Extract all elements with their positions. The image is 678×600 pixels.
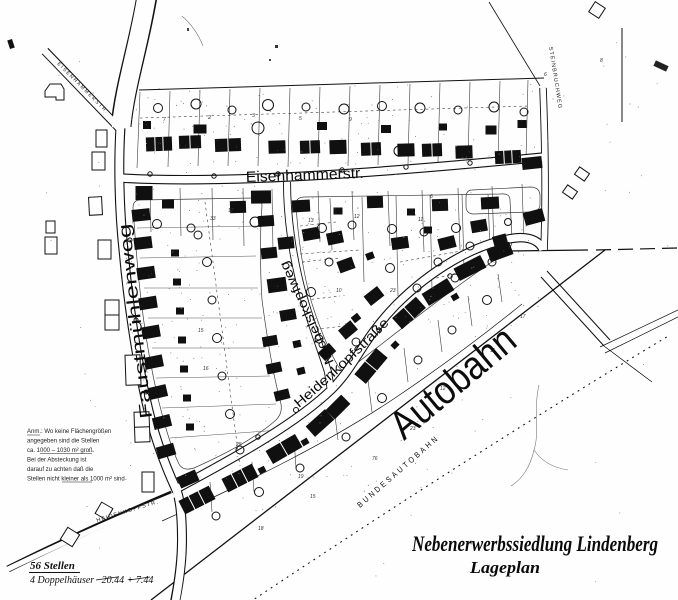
svg-text:76: 76 bbox=[372, 456, 378, 462]
svg-text:Lageplan: Lageplan bbox=[469, 558, 540, 577]
svg-text:7: 7 bbox=[163, 117, 166, 123]
svg-text:56 Stellen: 56 Stellen bbox=[30, 560, 75, 572]
svg-text:33: 33 bbox=[210, 216, 216, 222]
svg-text:15: 15 bbox=[310, 494, 316, 500]
svg-text:Nebenerwerbssiedlung Lindenber: Nebenerwerbssiedlung Lindenberg bbox=[411, 531, 658, 556]
svg-text:6: 6 bbox=[430, 194, 433, 200]
svg-text:13: 13 bbox=[308, 218, 314, 224]
svg-text:Bei der Absteckung ist: Bei der Absteckung ist bbox=[27, 458, 87, 464]
svg-text:angegeben sind die Stellen: angegeben sind die Stellen bbox=[27, 439, 99, 445]
svg-text:5: 5 bbox=[299, 116, 302, 122]
svg-text:4 Doppelhäuser 20.44 + 7.44: 4 Doppelhäuser 20.44 + 7.44 bbox=[30, 575, 153, 586]
svg-text:11: 11 bbox=[418, 217, 423, 223]
svg-text:9: 9 bbox=[349, 117, 352, 123]
svg-text:darauf zu achten daß die: darauf zu achten daß die bbox=[27, 467, 94, 473]
svg-text:3: 3 bbox=[252, 113, 255, 119]
svg-text:15: 15 bbox=[198, 328, 204, 334]
svg-text:23: 23 bbox=[389, 288, 396, 294]
svg-text:10: 10 bbox=[336, 288, 342, 294]
svg-text:6: 6 bbox=[544, 72, 547, 78]
svg-text:Anm.: Wo keine Flächengrößen: Anm.: Wo keine Flächengrößen bbox=[27, 429, 111, 435]
svg-text:12: 12 bbox=[354, 214, 360, 220]
svg-text:8: 8 bbox=[600, 58, 603, 64]
svg-text:25: 25 bbox=[235, 442, 242, 448]
svg-text:18: 18 bbox=[258, 526, 264, 532]
svg-text:17: 17 bbox=[520, 314, 526, 320]
svg-text:19: 19 bbox=[298, 474, 304, 480]
svg-text:Stellen nicht kleiner als 1000: Stellen nicht kleiner als 1000 m² sind bbox=[27, 477, 125, 483]
svg-text:17: 17 bbox=[228, 208, 234, 214]
svg-text:ca. 1000 – 1030 m² groß.: ca. 1000 – 1030 m² groß. bbox=[27, 448, 95, 454]
svg-text:16: 16 bbox=[203, 366, 209, 372]
